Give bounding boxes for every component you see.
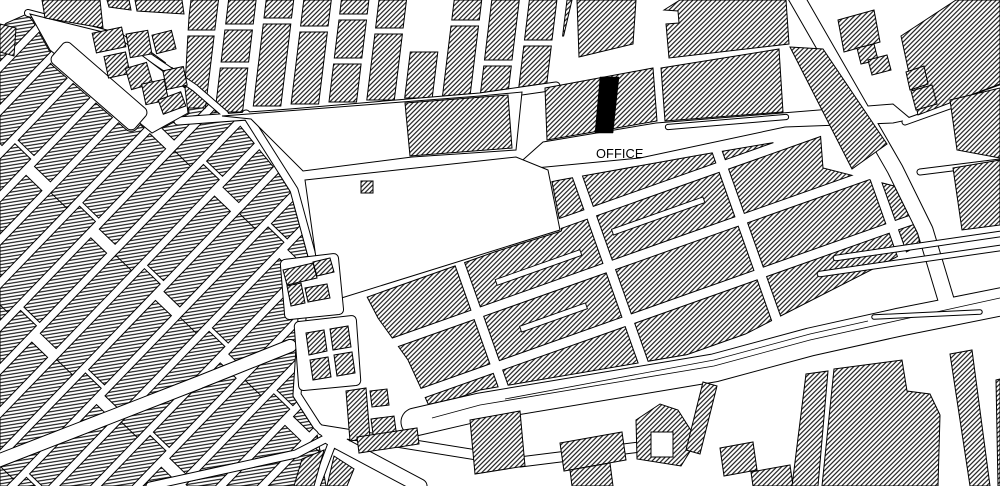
- svg-text:OFFICE: OFFICE: [596, 146, 644, 161]
